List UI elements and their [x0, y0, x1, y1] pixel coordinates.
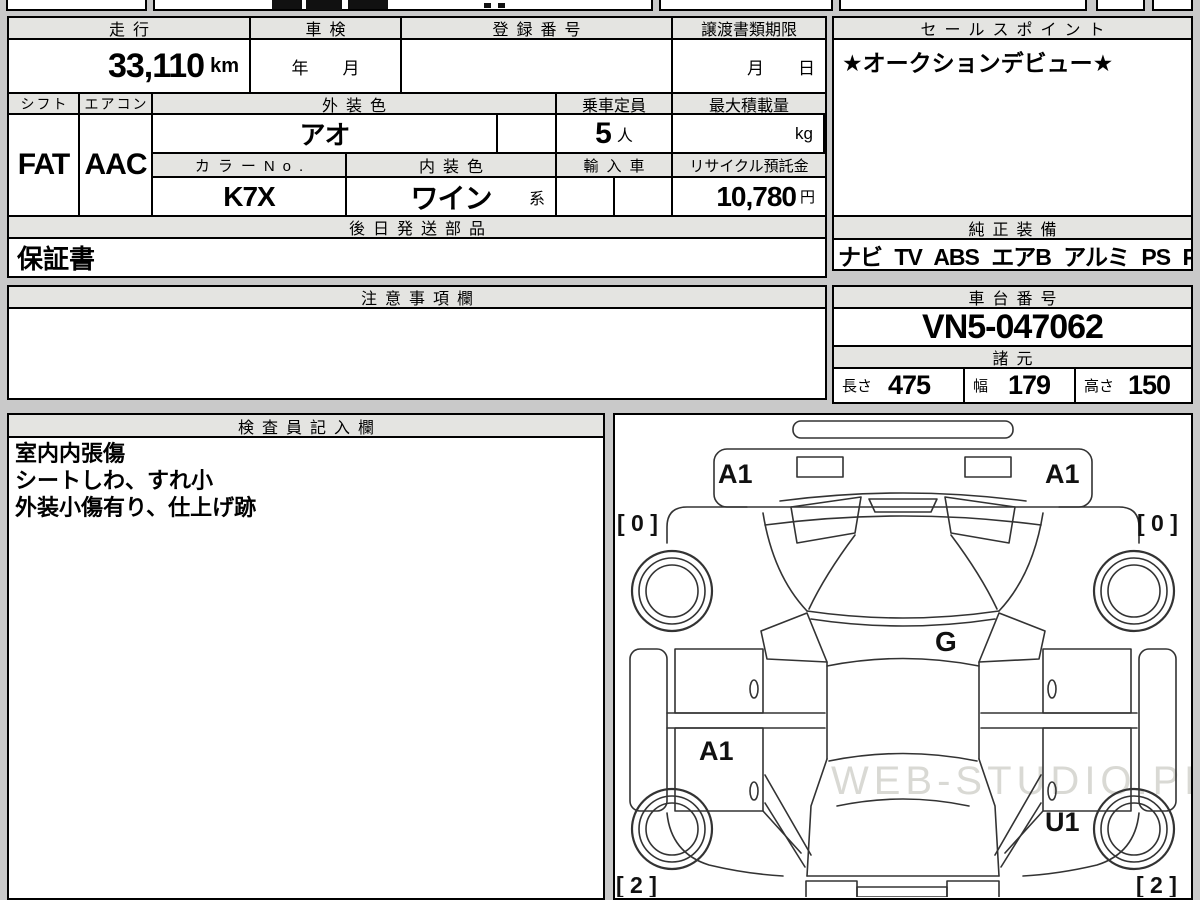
hood-edge-left [763, 513, 807, 611]
damage-label-door-left: A1 [699, 736, 734, 766]
aircon-header: エアコン [80, 94, 153, 115]
specs-row: 長さ475 幅179 高さ150 [834, 369, 1191, 402]
wheel-front-right [1094, 551, 1174, 631]
wiper-zone-left [791, 497, 861, 543]
cutoff-cell [153, 0, 653, 11]
front-door-left [675, 649, 763, 713]
transfer-deadline-header: 譲渡書類期限 [673, 18, 825, 40]
shaken-header: 車検 [251, 18, 402, 40]
truncated-text-fragment [306, 0, 342, 10]
bumper-slot-right [965, 457, 1011, 477]
cutoff-cell [1152, 0, 1193, 11]
max-load-value: kg [673, 115, 825, 154]
inspector-header: 検査員記入欄 [9, 415, 603, 438]
transfer-deadline-value: 月 日 [673, 40, 825, 94]
tire-depth-front-right: [ 0 ] [1137, 510, 1178, 536]
specs-header: 諸元 [834, 347, 1191, 369]
chassis-header: 車台番号 [834, 287, 1191, 309]
later-parts-value: 保証書 [9, 239, 825, 276]
windshield-bottom [765, 516, 1041, 525]
max-load-header: 最大積載量 [673, 94, 825, 115]
rear-window-bottom [837, 799, 969, 806]
genuine-equipment-header: 純正装備 [834, 217, 1191, 240]
exterior-color-extra [498, 115, 557, 154]
import-car-header: 輸入車 [557, 154, 673, 178]
color-no-value: K7X [153, 178, 347, 217]
shift-header: シフト [9, 94, 80, 115]
import-car-cell-2 [615, 178, 673, 217]
c-pillar-right [979, 759, 999, 876]
cowl-arc-2 [811, 619, 995, 626]
fender-front-right [1059, 507, 1139, 543]
rear-window-top [829, 754, 977, 762]
cutoff-cell [1096, 0, 1145, 11]
rear-door-right [1043, 728, 1131, 811]
roof-front-arc [827, 659, 979, 667]
auction-sheet: { "main_table": { "mileage": {"header":"… [0, 0, 1200, 900]
hood-crease-right [951, 535, 997, 609]
chassis-specs-block: 車台番号 VN5-047062 諸元 長さ475 幅179 高さ150 [832, 285, 1193, 404]
cutoff-cell [659, 0, 833, 11]
wiper-zone-right [945, 497, 1015, 543]
truncated-text-fragment [348, 0, 388, 9]
exterior-color-header: 外装色 [153, 94, 557, 115]
rear-notch-right [947, 881, 999, 897]
damage-label-roof: G [935, 626, 957, 657]
exterior-color-value: アオ [153, 115, 498, 154]
spec-width: 幅179 [965, 369, 1076, 402]
wheel-front-left [632, 551, 712, 631]
spec-length: 長さ475 [834, 369, 965, 402]
recycle-deposit-value: 10,780円 [673, 178, 825, 217]
registration-value [402, 40, 673, 94]
damage-label-bumper-right: A1 [1045, 459, 1080, 489]
shaken-value: 年 月 [251, 40, 402, 94]
rear-fold-right [1005, 811, 1043, 853]
inspector-body: 室内内張傷 シートしわ、すれ小 外装小傷有り、仕上げ跡 [9, 438, 603, 898]
door-handle [750, 680, 758, 698]
tire-depth-rear-right: [ 2 ] [1136, 872, 1177, 897]
wheel-rear-left [632, 789, 712, 869]
truncated-text-fragment [272, 0, 302, 9]
later-parts-header: 後日発送部品 [9, 217, 825, 239]
inspector-block: 検査員記入欄 室内内張傷 シートしわ、すれ小 外装小傷有り、仕上げ跡 [7, 413, 605, 900]
capacity-header: 乗車定員 [557, 94, 673, 115]
rocker-right [1139, 649, 1176, 811]
tire-depth-front-left: [ 0 ] [617, 510, 658, 536]
mileage-header: 走行 [9, 18, 251, 40]
import-car-cell-1 [557, 178, 615, 217]
sales-equipment-block: セールスポイント ★オークションデビュー★ 純正装備 ナビ TV ABS エアB… [832, 16, 1193, 271]
door-handle [1048, 782, 1056, 800]
tire-depth-rear-left: [ 2 ] [616, 872, 657, 897]
capacity-value: 5人 [557, 115, 673, 154]
sales-point-header: セールスポイント [834, 18, 1191, 40]
damage-label-bumper-left: A1 [718, 459, 753, 489]
bumper-slot-left [797, 457, 843, 477]
notes-header: 注意事項欄 [9, 287, 825, 309]
wiper-zone-center [869, 499, 937, 512]
door-handle [1048, 680, 1056, 698]
hood-edge-right [999, 513, 1043, 611]
damage-label-rear-right: U1 [1045, 807, 1080, 837]
cowl-arc-1 [807, 611, 999, 618]
color-no-header: カラーNo. [153, 154, 347, 178]
cutoff-cell [839, 0, 1087, 11]
interior-color-value: ワイン 系 [347, 178, 557, 217]
hood-crease-left [809, 535, 855, 609]
front-door-right [1043, 649, 1131, 713]
genuine-equipment-items: ナビ TV ABS エアB アルミ PS PW [834, 240, 1191, 269]
chassis-value: VN5-047062 [834, 309, 1191, 347]
inspector-note: 外装小傷有り、仕上げ跡 [15, 494, 597, 521]
inspector-note: シートしわ、すれ小 [15, 467, 597, 494]
shift-value: FAT [9, 115, 80, 217]
rear-notch-left [806, 881, 857, 897]
sales-point-text: ★オークションデビュー★ [834, 40, 1191, 217]
inspector-note: 室内内張傷 [15, 440, 597, 467]
notes-body [9, 309, 825, 398]
wheel-rear-right [1094, 789, 1174, 869]
truncated-text-fragment [498, 3, 505, 8]
car-top-view: A1 A1 [ 0 ] [ 0 ] G A1 U1 [ 2 ] [ 2 ] [615, 415, 1191, 897]
rear-fold-left [763, 811, 801, 853]
fender-front-left [667, 507, 747, 543]
notes-block: 注意事項欄 [7, 285, 827, 400]
aircon-value: AAC [80, 115, 153, 217]
door-handle [750, 782, 758, 800]
cutoff-cell [6, 0, 147, 11]
c-pillar-left [807, 759, 827, 876]
main-table: 走行 車検 登録番号 譲渡書類期限 33,110km 年 月 月 日 シフト エ… [7, 16, 827, 278]
recycle-deposit-header: リサイクル預託金 [673, 154, 825, 178]
rear-bar [857, 887, 947, 897]
damage-diagram: WEB-STUDIO.PRO [613, 413, 1193, 900]
truncated-text-fragment [484, 3, 491, 8]
spec-height: 高さ150 [1076, 369, 1191, 402]
mileage-value: 33,110km [9, 40, 251, 94]
rocker-left [630, 649, 667, 811]
interior-color-header: 内装色 [347, 154, 557, 178]
front-trim-strip [793, 421, 1013, 438]
registration-header: 登録番号 [402, 18, 673, 40]
